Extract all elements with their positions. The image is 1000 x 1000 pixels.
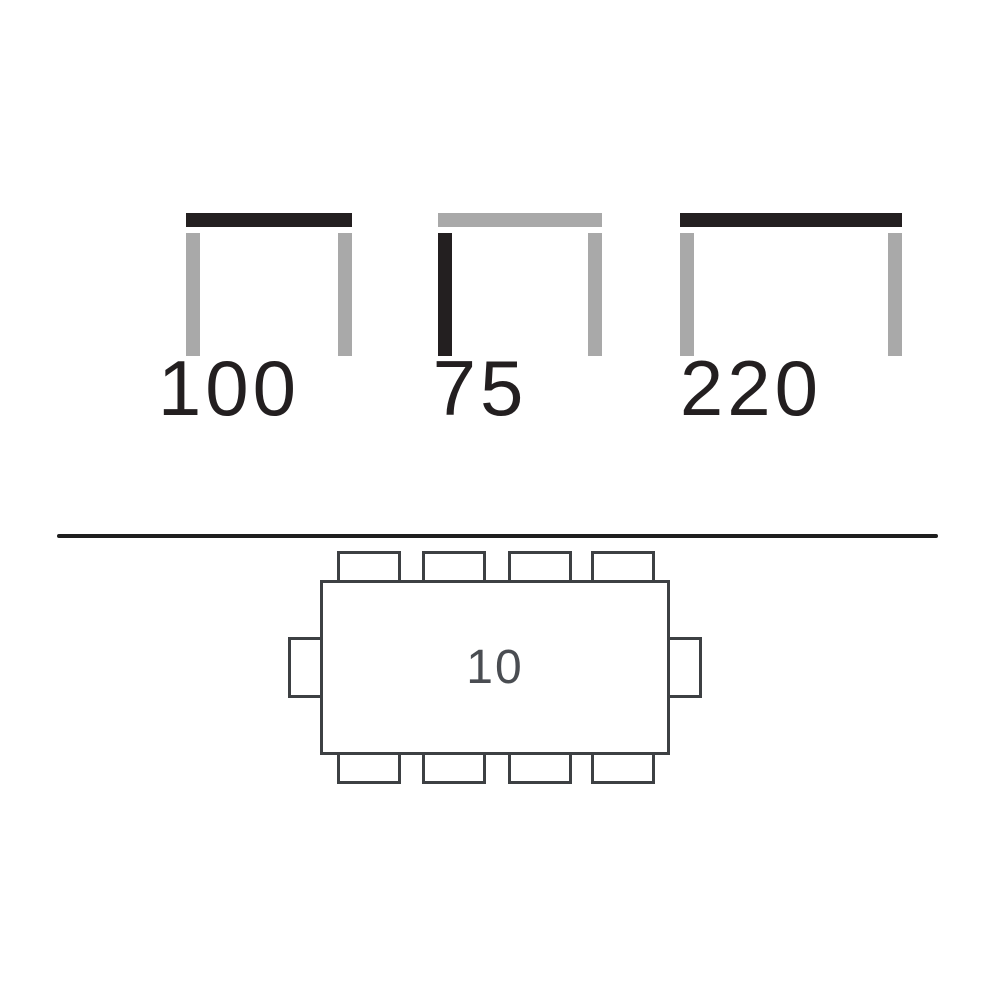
table-leg-left [438, 233, 452, 356]
table-leg-right [588, 233, 602, 356]
table-side-view-width [186, 213, 352, 358]
tabletop-bar [680, 213, 902, 227]
dimension-value-length: 220 [640, 348, 862, 428]
table-leg-left [186, 233, 200, 356]
tabletop-bar [186, 213, 352, 227]
chair-bottom-4 [591, 750, 655, 784]
chair-bottom-2 [422, 750, 486, 784]
table-side-view-height [438, 213, 602, 358]
chair-bottom-1 [337, 750, 401, 784]
dimension-value-height: 75 [398, 348, 562, 428]
table-dimension-sheet: 100 75 220 10 [0, 0, 1000, 1000]
chair-bottom-3 [508, 750, 572, 784]
seating-capacity-label: 10 [466, 640, 523, 695]
chair-left [288, 637, 323, 698]
table-leg-right [338, 233, 352, 356]
table-side-view-length [680, 213, 902, 358]
table-leg-left [680, 233, 694, 356]
section-divider [57, 534, 938, 538]
chair-right [667, 637, 702, 698]
dimension-value-width: 100 [146, 348, 312, 428]
tabletop-bar [438, 213, 602, 227]
tabletop-outline: 10 [320, 580, 670, 755]
table-leg-right [888, 233, 902, 356]
